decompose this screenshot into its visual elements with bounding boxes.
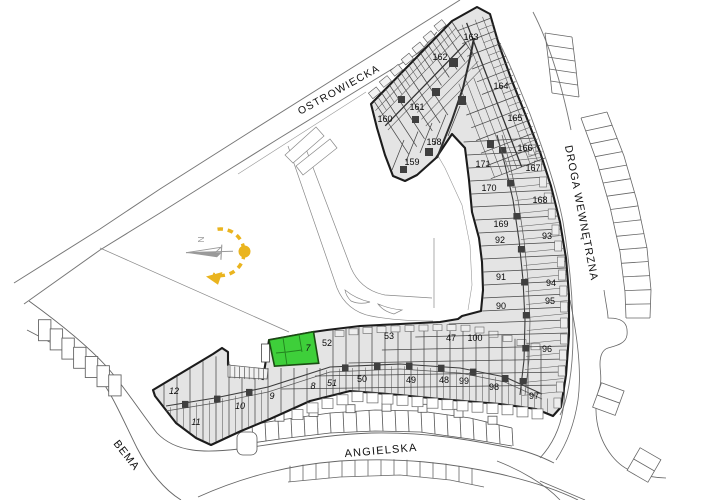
svg-text:9: 9 bbox=[269, 391, 274, 401]
svg-text:49: 49 bbox=[406, 375, 416, 385]
svg-text:94: 94 bbox=[546, 278, 556, 288]
svg-text:52: 52 bbox=[322, 338, 332, 348]
svg-text:51: 51 bbox=[327, 378, 337, 388]
svg-text:97: 97 bbox=[529, 391, 539, 401]
svg-text:171: 171 bbox=[475, 159, 490, 169]
svg-text:161: 161 bbox=[409, 102, 424, 112]
svg-text:BEMA: BEMA bbox=[111, 438, 142, 473]
svg-text:170: 170 bbox=[481, 183, 496, 193]
svg-text:47: 47 bbox=[446, 333, 456, 343]
svg-text:DROGA WEWNĘTRZNA: DROGA WEWNĘTRZNA bbox=[562, 144, 600, 282]
svg-text:99: 99 bbox=[459, 376, 469, 386]
svg-text:159: 159 bbox=[404, 157, 419, 167]
svg-text:169: 169 bbox=[493, 219, 508, 229]
svg-text:163: 163 bbox=[463, 32, 478, 42]
svg-text:164: 164 bbox=[493, 81, 508, 91]
svg-text:92: 92 bbox=[495, 235, 505, 245]
svg-text:165: 165 bbox=[507, 113, 522, 123]
svg-text:96: 96 bbox=[542, 344, 552, 354]
svg-text:8: 8 bbox=[310, 381, 315, 391]
svg-text:ANGIELSKA: ANGIELSKA bbox=[344, 442, 418, 460]
svg-text:90: 90 bbox=[496, 301, 506, 311]
svg-text:53: 53 bbox=[384, 331, 394, 341]
svg-text:11: 11 bbox=[191, 417, 200, 427]
svg-text:98: 98 bbox=[489, 382, 499, 392]
svg-text:100: 100 bbox=[467, 333, 482, 343]
svg-text:10: 10 bbox=[235, 401, 245, 411]
svg-text:160: 160 bbox=[377, 114, 392, 124]
svg-text:168: 168 bbox=[532, 195, 547, 205]
svg-text:N: N bbox=[196, 236, 206, 242]
svg-text:91: 91 bbox=[496, 272, 506, 282]
svg-text:167: 167 bbox=[525, 163, 540, 173]
svg-text:95: 95 bbox=[545, 296, 555, 306]
svg-text:93: 93 bbox=[542, 231, 552, 241]
svg-text:162: 162 bbox=[432, 52, 447, 62]
svg-text:48: 48 bbox=[439, 375, 449, 385]
svg-text:158: 158 bbox=[426, 137, 441, 147]
svg-text:12: 12 bbox=[169, 386, 179, 396]
svg-text:166: 166 bbox=[517, 143, 532, 153]
svg-text:50: 50 bbox=[357, 374, 367, 384]
